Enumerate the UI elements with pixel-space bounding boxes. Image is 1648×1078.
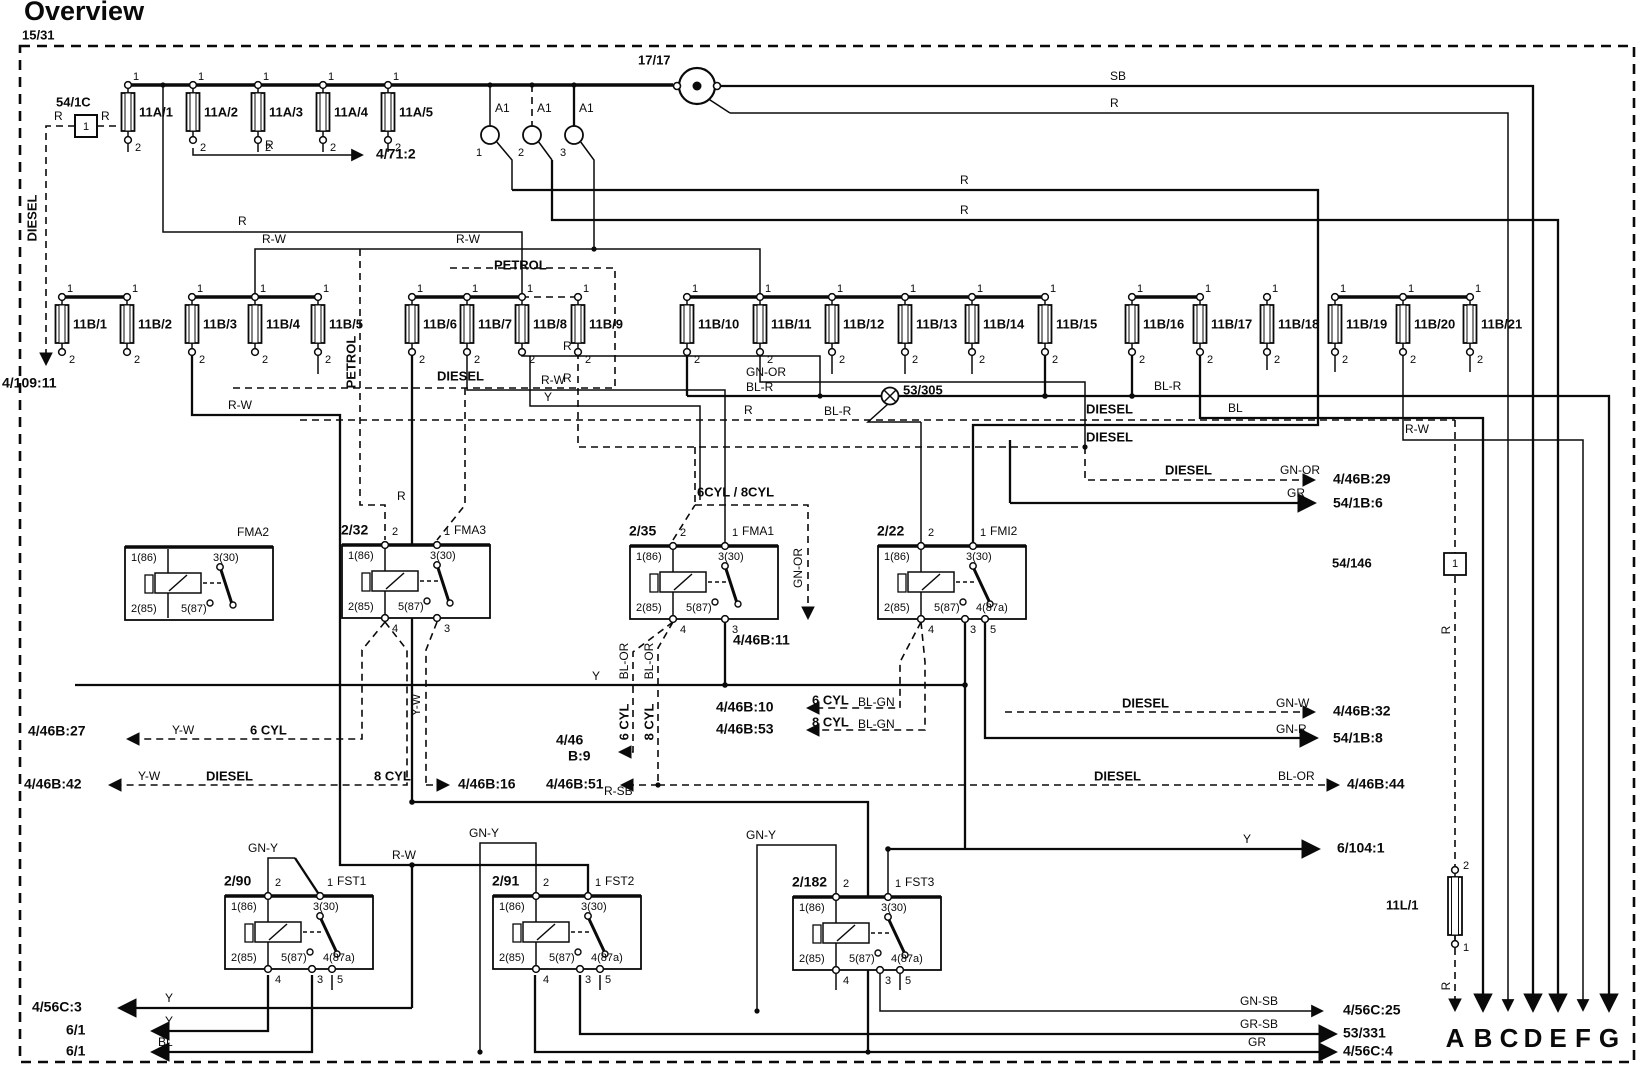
diagram-label: Y (544, 390, 552, 404)
fuse-name: 11A/1 (139, 104, 173, 119)
diagram-label: 6CYL / 8CYL (697, 484, 774, 499)
relay-label: 4 (392, 623, 398, 635)
diagram-label: Y (165, 991, 173, 1005)
diagram-label: 2 (518, 147, 524, 159)
relay-label: 5 (337, 974, 343, 986)
connector-a1 (481, 126, 583, 144)
diagram-label: PETROL (494, 257, 547, 272)
fuse-pin-label: 1 (1272, 283, 1278, 295)
diagram-label: A1 (537, 101, 552, 115)
fuse-name: 11B/19 (1346, 316, 1387, 331)
fuse-pin-label: 1 (1408, 283, 1414, 295)
relay-label: FST1 (337, 874, 367, 888)
relay-label: 1 (732, 527, 738, 539)
diagram-label: 6 CYL (812, 692, 849, 707)
fuse-pin-label: 1 (583, 283, 589, 295)
diagram-label: DIESEL (437, 368, 484, 383)
relay-label: FMA3 (454, 523, 486, 537)
fuse-11B/8: 1211B/8 (516, 283, 567, 366)
diagram-label: GN-OR (1280, 463, 1320, 477)
diagram-label: 8 CYL (374, 768, 411, 783)
fuse-pin-label: 1 (197, 283, 203, 295)
fuse-name: 11B/12 (843, 316, 884, 331)
relay-label: 2/32 (341, 522, 368, 538)
fuse-pin-label: 1 (977, 283, 983, 295)
diagram-label: Y (1243, 832, 1251, 846)
fuse-pin-label: 1 (837, 283, 843, 295)
fuse-pin-label: 1 (1475, 283, 1481, 295)
diagram-label: GN-OR (791, 548, 805, 588)
relay-2/32: 1(86)3(30)2(85)5(87)2/32FMA32143 (341, 522, 490, 635)
fuse-pin-label: 1 (263, 71, 269, 83)
diagram-label: R (1439, 625, 1453, 634)
diagram-label: 4/46B:42 (24, 776, 82, 792)
relay-label: 5(87) (281, 952, 307, 964)
diagram-label: GN-SB (1240, 994, 1278, 1008)
relay-label: 5(87) (549, 952, 575, 964)
wiring-diagram-page: Overview (0, 0, 1648, 1078)
diagram-label: R (960, 173, 969, 187)
relay-label: 1(86) (499, 901, 525, 913)
relay-label: 3(30) (313, 901, 339, 913)
diagram-label: F (1575, 1023, 1591, 1053)
diagram-label: R (563, 339, 572, 353)
diagram-label: SB (1110, 69, 1126, 83)
diagram-label: R (744, 403, 753, 417)
relay-label: 4 (680, 624, 686, 636)
fuse-name: 11B/20 (1414, 316, 1455, 331)
relay-label: 3(30) (213, 552, 239, 564)
diagram-label: DIESEL (206, 768, 253, 783)
relay-label: 2(85) (231, 952, 257, 964)
diagram-label: BL-GN (858, 717, 895, 731)
relay-label: 4(87a) (976, 602, 1008, 614)
relay-label: 2(85) (636, 602, 662, 614)
relay-label: 2/91 (492, 873, 519, 889)
diagram-label: GN-Y (248, 841, 278, 855)
components-misc: 1 (75, 68, 1466, 947)
diagram-label: 54/1C (56, 94, 91, 109)
fuse-name: 11B/13 (916, 316, 957, 331)
relay-label: 2 (680, 527, 686, 539)
diagram-label: G (1599, 1023, 1619, 1053)
fuse-pin-label: 1 (132, 283, 138, 295)
diagram-label: 4/56C:25 (1343, 1002, 1401, 1018)
relay-label: 2(85) (348, 601, 374, 613)
fuse-pin-label: 2 (585, 354, 591, 366)
diagram-label: R (238, 214, 247, 228)
fuse-pin-label: 2 (1207, 354, 1213, 366)
relay-label: 5(87) (686, 602, 712, 614)
diagram-label: B (1474, 1023, 1493, 1053)
diagram-label: 6/1 (66, 1022, 86, 1038)
relay-label: 4 (928, 624, 934, 636)
fuse-11B/17: 1211B/17 (1194, 283, 1253, 366)
diagram-label: BL-OR (617, 642, 631, 679)
diagram-label: BL (1228, 401, 1243, 415)
fuse-name: 11B/2 (138, 316, 172, 331)
diagram-label: DIESEL (1165, 462, 1212, 477)
fuse-11B/2: 1211B/2 (121, 283, 172, 366)
fuse-name: 11B/17 (1211, 316, 1252, 331)
relay-label: FST3 (905, 875, 935, 889)
resistor-pin-label: 1 (83, 121, 89, 133)
diagram-label: 4/46B:29 (1333, 471, 1391, 487)
diagram-label: 4/46B:11 (733, 632, 790, 648)
relay-label: 1(86) (799, 902, 825, 914)
relay-label: 4(87a) (591, 952, 623, 964)
relay-label: 4 (275, 974, 281, 986)
relay-label: 2 (392, 526, 398, 538)
diagram-label: 6 CYL (616, 704, 631, 741)
relay-2/22: 1(86)3(30)2(85)5(87)4(87a)2/22FMI221435 (877, 523, 1026, 636)
relay-label: 3(30) (718, 551, 744, 563)
diagram-label: 6/1 (66, 1043, 86, 1059)
relay-label: 3(30) (881, 902, 907, 914)
diagram-label: DIESEL (1086, 401, 1133, 416)
relay-label: 1 (327, 877, 333, 889)
diagram-label: DIESEL (1086, 429, 1133, 444)
diagram-label: BL-OR (642, 642, 656, 679)
diagram-label: R (960, 203, 969, 217)
diagram-label: R (397, 489, 406, 503)
relay-FMA2: 1(86)3(30)2(85)5(87)FMA2 (125, 525, 273, 620)
diagram-label: 1 (476, 147, 482, 159)
ground-53-305 (882, 388, 899, 405)
fuse-pin-label: 2 (262, 354, 268, 366)
diagram-label: DIESEL (1094, 768, 1141, 783)
diagram-label: 4/46B:44 (1347, 776, 1405, 792)
fuse-pin-label: 2 (200, 142, 206, 154)
relay-label: FMI2 (990, 524, 1018, 538)
relay-label: 3(30) (430, 550, 456, 562)
diagram-label: R-SB (604, 784, 633, 798)
diagram-label: GN-W (1276, 696, 1310, 710)
relay-label: 4(87a) (323, 952, 355, 964)
relay-label: FMA1 (742, 524, 774, 538)
relay-label: 5(87) (934, 602, 960, 614)
diagram-label: 6 CYL (250, 722, 287, 737)
diagram-label: 4/46B:53 (716, 721, 774, 737)
fuse-pin-label: 1 (472, 283, 478, 295)
fuse-pin-label: 2 (1052, 354, 1058, 366)
relay-label: 3 (444, 623, 450, 635)
diagram-label: 54/1B:6 (1333, 495, 1383, 511)
diagram-label: 54/1B:8 (1333, 730, 1383, 746)
fuse-name: 11B/4 (266, 316, 301, 331)
diagram-label: 1 (1463, 942, 1469, 954)
diagram-label: GR (1287, 486, 1305, 500)
fuse-pin-label: 1 (765, 283, 771, 295)
fuse-11B/15: 1211B/15 (1039, 283, 1098, 366)
diagram-label: R-W (262, 232, 287, 246)
diagram-label: R (54, 109, 63, 123)
fuse-pin-label: 1 (1137, 283, 1143, 295)
fuse-pin-label: 1 (417, 283, 423, 295)
relay-label: 5(87) (181, 603, 207, 615)
relay-label: 2 (843, 878, 849, 890)
diagram-label: 4/56C:3 (32, 999, 82, 1015)
fuse-11B/21: 1211B/21 (1464, 283, 1523, 366)
diagram-label: R (1110, 96, 1119, 110)
diagram-label: R-W (1405, 422, 1430, 436)
fuse-pin-label: 1 (198, 71, 204, 83)
fuse-pin-label: 2 (1477, 354, 1483, 366)
diagram-label: A1 (495, 101, 510, 115)
fuse-11L1 (1448, 867, 1462, 948)
fuse-name: 11A/4 (334, 104, 369, 119)
relay-label: 3 (585, 974, 591, 986)
diagram-label: A1 (579, 101, 594, 115)
diagram-label: 11L/1 (1386, 897, 1419, 912)
diagram-label: R-W (541, 373, 566, 387)
diagram-label: 4/46B:16 (458, 776, 516, 792)
fuse-name: 11B/5 (329, 316, 363, 331)
fuse-pin-label: 2 (912, 354, 918, 366)
fuse-pin-label: 1 (910, 283, 916, 295)
relay-label: 4(87a) (891, 953, 923, 965)
relay-label: 3(30) (581, 901, 607, 913)
fuse-name: 11B/11 (771, 316, 812, 331)
diagram-label: B:9 (568, 748, 591, 764)
diagram-label: Y (592, 669, 600, 683)
relay-label: 1 (895, 878, 901, 890)
relay-label: 3 (317, 974, 323, 986)
diagram-label: C (1500, 1023, 1519, 1053)
fuse-pin-label: 1 (67, 283, 73, 295)
fuse-pin-label: 1 (133, 71, 139, 83)
diagram-label: 4/109:11 (2, 375, 57, 391)
diagram-label: R (265, 138, 274, 152)
relay-2/182: 1(86)3(30)2(85)5(87)4(87a)2/182FST321435 (792, 874, 941, 987)
diagram-label: 8 CYL (812, 714, 849, 729)
diagram-label: 15/31 (22, 27, 55, 42)
diagram-label: R (101, 109, 110, 123)
fuse-pin-label: 2 (1274, 354, 1280, 366)
fuse-pin-label: 2 (694, 354, 700, 366)
fuse-name: 11B/21 (1481, 316, 1522, 331)
diagram-label: BL-GN (858, 695, 895, 709)
diagram-label: R (1439, 981, 1453, 990)
ignition-switch-17-17 (674, 68, 721, 104)
relay-label: 5 (990, 624, 996, 636)
fuse-name: 11B/15 (1056, 316, 1097, 331)
relay-label: 2/90 (224, 873, 251, 889)
fuse-pin-label: 2 (474, 354, 480, 366)
relay-label: 2 (928, 527, 934, 539)
diagram-label: 8 CYL (641, 704, 656, 741)
wiring-diagram: 1 (0, 0, 1648, 1078)
diagram-label: PETROL (343, 336, 358, 389)
relay-label: 3(30) (966, 551, 992, 563)
fuse-pin-label: 2 (135, 142, 141, 154)
diagram-label: BL-OR (1278, 769, 1315, 783)
fuse-11B/18: 1211B/18 (1261, 283, 1320, 366)
fuse-pin-label: 1 (1340, 283, 1346, 295)
fuse-pin-label: 2 (330, 142, 336, 154)
diagram-label: BL-R (824, 404, 852, 418)
diagram-label: 53/305 (903, 382, 943, 397)
diagram-label: GN-Y (746, 828, 776, 842)
fuse-name: 11A/2 (204, 104, 238, 119)
relay-label: 2/182 (792, 874, 827, 890)
fuse-name: 11A/3 (269, 104, 303, 119)
fuse-pin-label: 2 (69, 354, 75, 366)
relay-label: 4 (543, 974, 549, 986)
diagram-label: DIESEL (1122, 695, 1169, 710)
relay-label: 2(85) (799, 953, 825, 965)
fuse-pin-label: 2 (767, 354, 773, 366)
diagram-label: 4/71:2 (376, 146, 416, 162)
diagram-label: GN-Y (469, 826, 499, 840)
page-title: Overview (24, 0, 144, 27)
relay-label: FST2 (605, 874, 635, 888)
diagram-label: 4/46 (556, 732, 583, 748)
diagram-label: R-W (228, 398, 253, 412)
diagram-label: Y (165, 1014, 173, 1028)
fuse-pin-label: 2 (134, 354, 140, 366)
fuse-name: 11B/16 (1143, 316, 1184, 331)
fuse-name: 11B/8 (533, 316, 567, 331)
diagram-label: A (1446, 1023, 1465, 1053)
fuse-name: 11B/1 (73, 316, 107, 331)
relay-label: 2 (543, 877, 549, 889)
diagram-label: 1 (1452, 558, 1458, 570)
diagram-label: BL-R (746, 380, 774, 394)
relay-label: 5 (905, 975, 911, 987)
fuse-name: 11B/10 (698, 316, 739, 331)
relay-label: 1(86) (131, 552, 157, 564)
fuse-name: 11A/5 (399, 104, 433, 119)
fuse-pin-label: 1 (1205, 283, 1211, 295)
relay-label: 2(85) (499, 952, 525, 964)
diagram-label: 54/146 (1332, 555, 1372, 570)
diagram-label: 4/46B:10 (716, 699, 774, 715)
fuse-pin-label: 2 (419, 354, 425, 366)
diagram-label: R-W (392, 848, 417, 862)
diagram-label: GR-SB (1240, 1017, 1278, 1031)
diagram-label: E (1549, 1023, 1566, 1053)
fuse-pin-label: 1 (527, 283, 533, 295)
fuse-pin-label: 2 (1342, 354, 1348, 366)
fuse-pin-label: 2 (979, 354, 985, 366)
relay-label: 2 (275, 877, 281, 889)
relay-label: 2(85) (131, 603, 157, 615)
relay-label: 2/35 (629, 523, 656, 539)
relay-label: 1 (595, 877, 601, 889)
fuse-name: 11B/14 (983, 316, 1025, 331)
fuse-name: 11B/9 (589, 316, 623, 331)
fuse-pin-label: 1 (1050, 283, 1056, 295)
diagram-label: 4/46B:27 (28, 723, 86, 739)
relay-label: 5 (605, 974, 611, 986)
fuse-pin-label: 1 (260, 283, 266, 295)
relay-label: 1(86) (884, 551, 910, 563)
relay-label: 1 (980, 527, 986, 539)
relay-label: 1(86) (348, 550, 374, 562)
relay-label: 1(86) (231, 901, 257, 913)
relay-label: 3 (885, 975, 891, 987)
fuse-pin-label: 2 (839, 354, 845, 366)
fuse-pin-label: 1 (323, 283, 329, 295)
diagram-label: 4/56C:4 (1343, 1043, 1393, 1059)
diagram-label: 2 (1463, 860, 1469, 872)
diagram-label: Y-W (172, 723, 195, 737)
diagram-label: 4/46B:51 (546, 776, 604, 792)
relay-label: 2/22 (877, 523, 904, 539)
diagram-label: 17/17 (638, 52, 671, 67)
diagram-label: R-W (456, 232, 481, 246)
relay-label: 5(87) (849, 953, 875, 965)
fuse-name: 11B/18 (1278, 316, 1319, 331)
relay-label: 1 (444, 526, 450, 538)
fuse-name: 11B/3 (203, 316, 237, 331)
diagram-label: 3 (560, 147, 566, 159)
diagram-label: 53/331 (1343, 1025, 1386, 1041)
fuse-pin-label: 2 (199, 354, 205, 366)
fuse-name: 11B/7 (478, 316, 512, 331)
diagram-label: 6/104:1 (1337, 840, 1385, 856)
diagram-label: BL (158, 1035, 173, 1049)
fuse-pin-label: 2 (1139, 354, 1145, 366)
fuse-pin-label: 1 (328, 71, 334, 83)
fuse-name: 11B/6 (423, 316, 457, 331)
relay-label: FMA2 (237, 525, 269, 539)
diagram-label: 4/46B:32 (1333, 703, 1391, 719)
relay-label: 1(86) (636, 551, 662, 563)
diagram-label: GR (1248, 1035, 1266, 1049)
relay-2/91: 1(86)3(30)2(85)5(87)4(87a)2/91FST221435 (492, 873, 641, 986)
relay-label: 2(85) (884, 602, 910, 614)
generated-components: 1211A/11211A/21211A/31211A/41211A/51211B… (2, 27, 1619, 1058)
diagram-label: GN-R (1276, 722, 1307, 736)
fuse-pin-label: 2 (529, 354, 535, 366)
relay-2/35: 1(86)3(30)2(85)5(87)2/35FMA12143 (629, 523, 778, 636)
relay-label: 5(87) (398, 601, 424, 613)
diagram-label: GN-OR (746, 365, 786, 379)
diagram-label: DIESEL (24, 194, 39, 241)
relay-label: 4 (843, 975, 849, 987)
diagram-label: Y-W (138, 769, 161, 783)
relay-label: 3 (970, 624, 976, 636)
fuse-pin-label: 2 (325, 354, 331, 366)
diagram-label: BL-R (1154, 379, 1182, 393)
diagram-label: D (1524, 1023, 1543, 1053)
fuse-pin-label: 2 (1410, 354, 1416, 366)
diagram-label: Y-W (409, 693, 423, 716)
fuse-pin-label: 1 (692, 283, 698, 295)
relay-2/90: 1(86)3(30)2(85)5(87)4(87a)2/90FST121435 (224, 873, 373, 986)
fuse-pin-label: 1 (393, 71, 399, 83)
